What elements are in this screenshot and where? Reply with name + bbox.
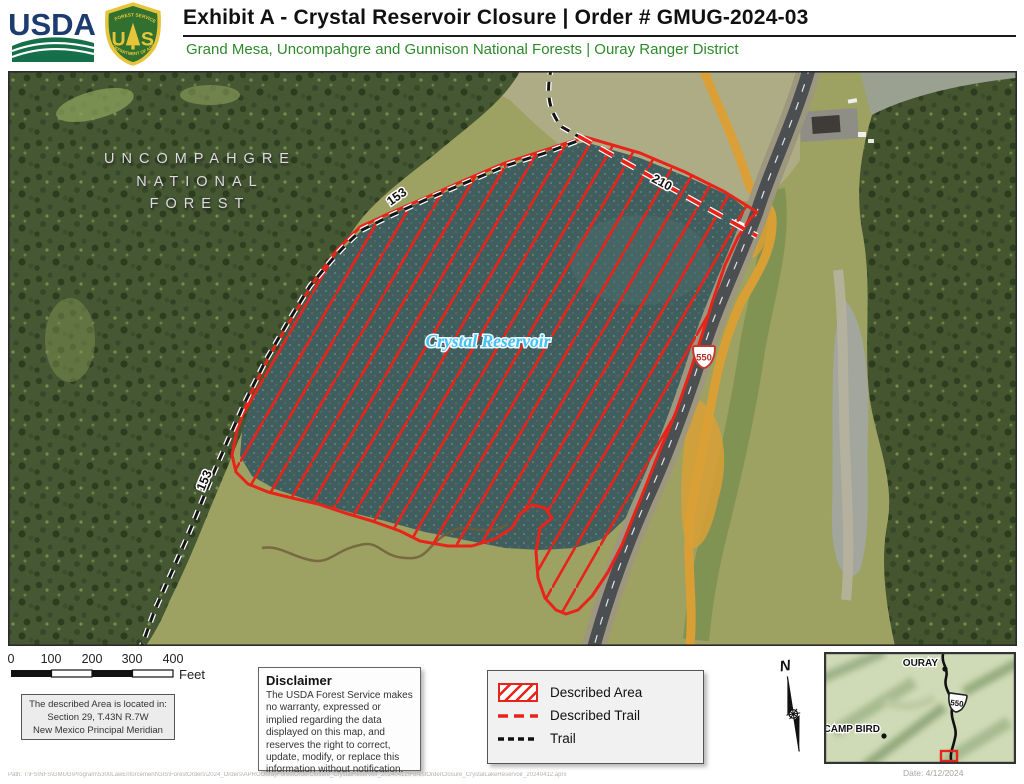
north-needle-lower [794,715,806,751]
location-description-box: The described Area is located in: Sectio… [21,694,175,740]
forest-service-shield-logo: FOREST SERVICE DEPARTMENT OF AGRICULTURE… [101,2,165,66]
location-line1: The described Area is located in: [22,698,174,711]
disclaimer-body: The USDA Forest Service makes no warrant… [266,690,413,777]
map-exhibit-page: USDA FOREST SERVICE DEPARTMENT OF AGRICU… [0,0,1024,784]
map-area[interactable]: 153 153 210 UNCOMPAHGRE NATIONAL FOREST … [8,71,1017,646]
scale-tick-100: 100 [41,652,62,666]
scale-tick-200: 200 [82,652,103,666]
document-path-text: Path: T:\FS\NFS\GMUG\Program\5300LawEnfo… [8,772,888,778]
legend-label: Described Area [550,685,642,700]
inset-ouray-label: OURAY [903,658,939,669]
scale-unit-label: Feet [179,667,205,682]
legend-label: Described Trail [550,708,640,723]
page-subtitle: Grand Mesa, Uncompahgre and Gunnison Nat… [186,41,1006,58]
scale-tick-0: 0 [8,652,15,666]
usda-logo: USDA [6,5,98,63]
scale-tick-300: 300 [122,652,143,666]
legend-item-described-area: Described Area [498,681,703,704]
building-roof [811,115,840,134]
inset-550-shield-text: 550 [950,698,965,709]
usda-wordmark: USDA [8,7,96,42]
page-title: Exhibit A - Crystal Reservoir Closure | … [183,6,1013,30]
inset-campbird-label: CAMP BIRD [824,724,880,735]
described-trail-swatch [498,713,538,719]
shield-monogram-s: S [141,28,154,50]
legend-item-trail: Trail [498,727,703,750]
disclaimer-title: Disclaimer [266,673,413,688]
inset-ouray-dot [942,666,947,671]
legend-box: Described Area Described Trail Trail [487,670,704,764]
legend-label: Trail [550,731,576,746]
document-date-text: Date: 4/12/2024 [903,768,964,778]
reservoir-label: Crystal Reservoir [426,331,551,351]
inset-overview-map[interactable]: OURAY CAMP BIRD 550 [824,652,1016,764]
location-line3: New Mexico Principal Meridian [22,724,174,737]
north-needle-upper [781,676,793,714]
north-arrow: N [773,652,813,764]
forest-name-line1: UNCOMPAHGRE [104,151,296,167]
forest-name-line3: FOREST [150,196,251,212]
disclaimer-box: Disclaimer The USDA Forest Service makes… [258,667,421,771]
trail-swatch [498,736,538,742]
highway-550-shield-text: 550 [696,353,712,364]
location-line2: Section 29, T.43N R.7W [22,711,174,724]
inset-campbird-dot [881,733,886,738]
scale-bar: 0 100 200 300 400 Feet [4,650,214,686]
forest-name-line2: NATIONAL [136,174,263,190]
legend-item-described-trail: Described Trail [498,704,703,727]
title-underline [183,35,1016,37]
north-arrow-label: N [778,657,793,676]
described-area-swatch [498,683,538,702]
shield-monogram-u: U [111,28,125,50]
scale-tick-400: 400 [163,652,184,666]
